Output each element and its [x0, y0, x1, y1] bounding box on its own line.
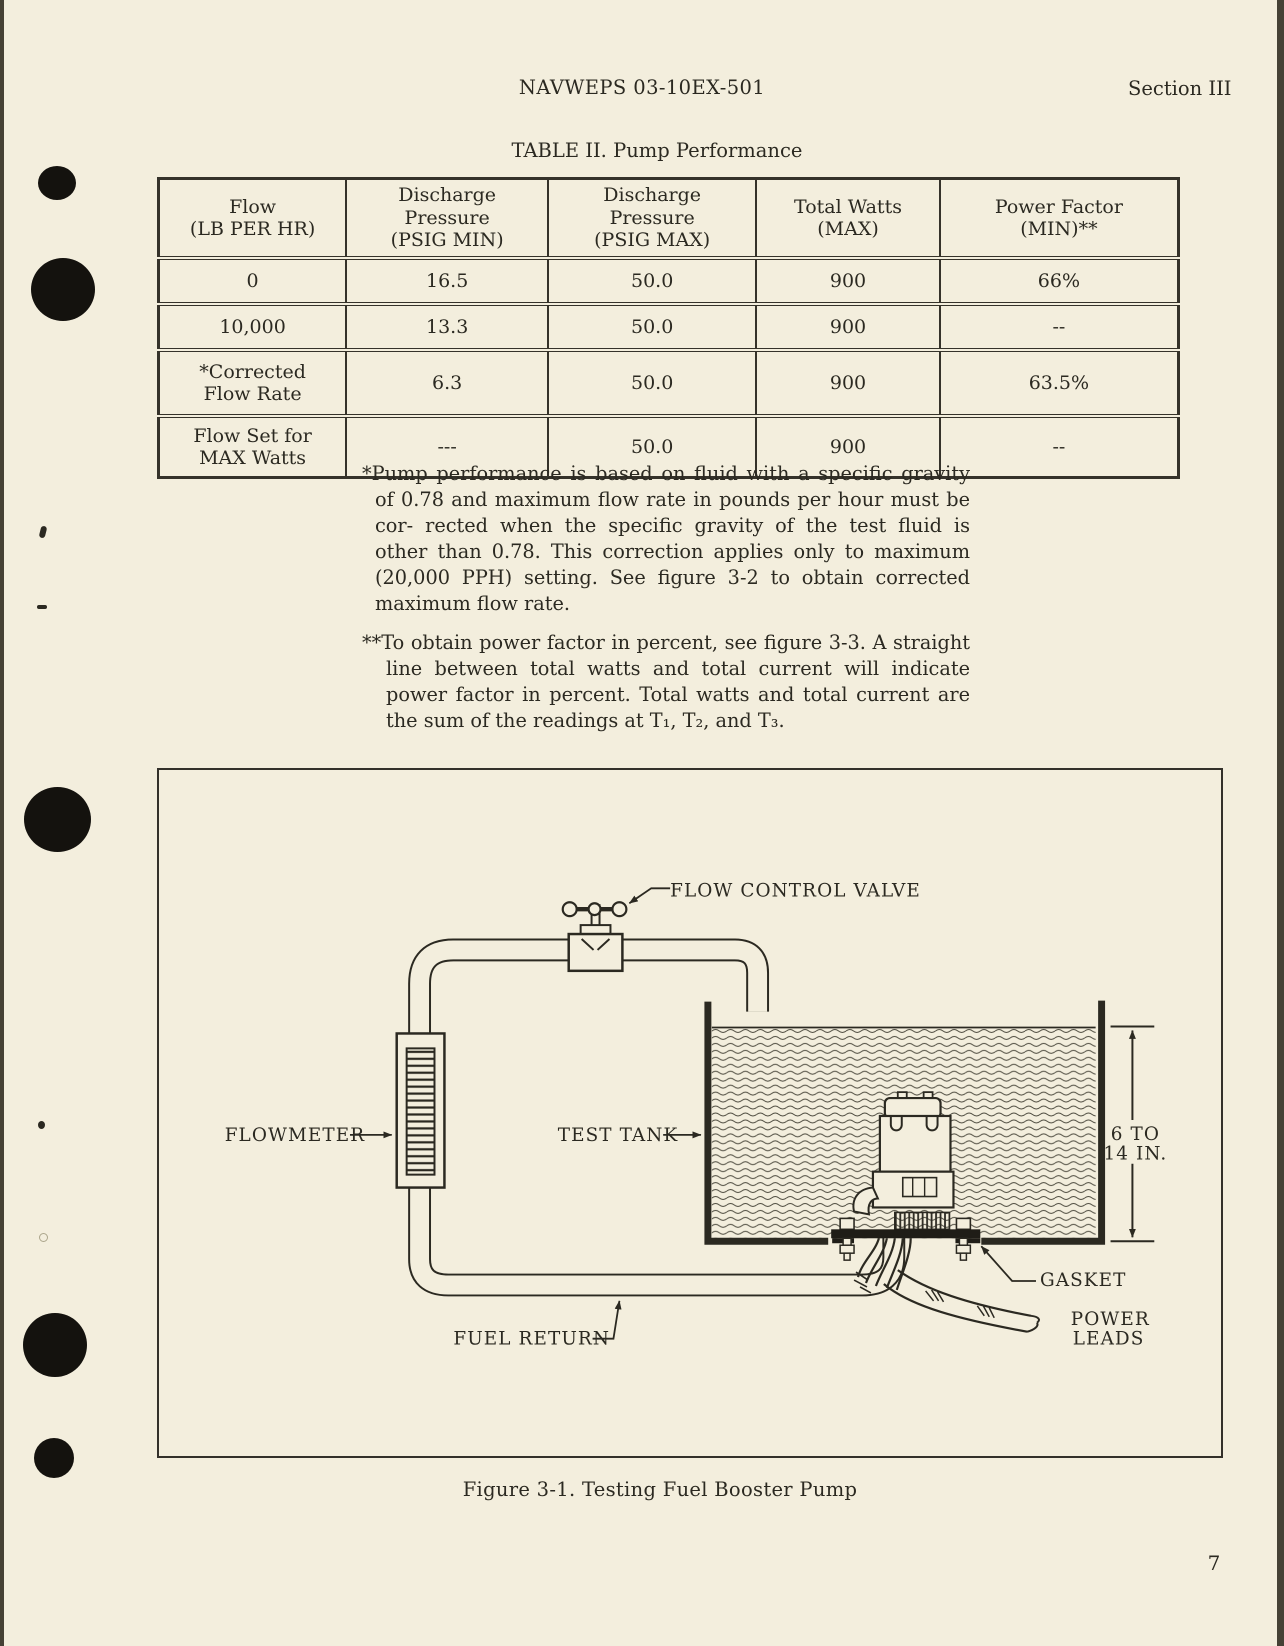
binder-hole	[38, 166, 76, 200]
doc-number: NAVWEPS 03-10EX-501	[0, 76, 1284, 99]
pump-performance-table: Flow(LB PER HR)DischargePressure(PSIG MI…	[157, 177, 1180, 479]
page-right-edge	[1277, 0, 1284, 1646]
figure-3-1: 6 TO 14 IN. FLOW CONTROL VALVE FLOWMETER…	[157, 768, 1223, 1458]
table-cell: 900	[756, 304, 940, 350]
binder-hole	[34, 1438, 74, 1478]
fuel-return-label: FUEL RETURN	[453, 1329, 610, 1350]
pump-ribbed-collar	[895, 1212, 950, 1229]
power-leads-label: LEADS	[1073, 1329, 1145, 1350]
table-cell: 16.5	[346, 258, 548, 304]
table-cell: 63.5%	[940, 350, 1179, 416]
power-leads-label: POWER	[1071, 1309, 1150, 1330]
document-page: NAVWEPS 03-10EX-501 Section III TABLE II…	[0, 0, 1284, 1646]
table-row: 10,00013.350.0900--	[159, 304, 1179, 350]
footnote-marker: *	[362, 462, 372, 485]
testing-fuel-booster-pump-diagram: 6 TO 14 IN. FLOW CONTROL VALVE FLOWMETER…	[159, 770, 1221, 1456]
footnote-marker: **	[362, 631, 381, 654]
scan-speck	[38, 1121, 45, 1129]
table-cell: 6.3	[346, 350, 548, 416]
dimension-label: 6 TO	[1111, 1124, 1160, 1145]
table-title: TABLE II. Pump Performance	[127, 139, 1187, 162]
binder-hole	[31, 258, 95, 321]
footnote-text: To obtain power factor in percent, see f…	[381, 631, 970, 732]
table-header-row: Flow(LB PER HR)DischargePressure(PSIG MI…	[159, 179, 1179, 259]
gasket-label: GASKET	[1040, 1270, 1127, 1291]
valve-body	[569, 934, 623, 971]
table-cell: --	[940, 304, 1179, 350]
binder-hole	[23, 1313, 87, 1377]
table-cell: 66%	[940, 258, 1179, 304]
table-cell: 50.0	[548, 304, 756, 350]
table-cell: 0	[159, 258, 347, 304]
flow-control-valve	[563, 902, 627, 971]
footnote-text: Pump performance is based on fluid with …	[372, 462, 970, 615]
table-footnotes: *Pump performance is based on fluid with…	[362, 461, 970, 747]
table-cell: 13.3	[346, 304, 548, 350]
test-tank-label: TEST TANK	[558, 1125, 679, 1146]
scan-speck	[37, 605, 47, 609]
column-header: Total Watts(MAX)	[756, 179, 940, 259]
table-cell: Flow Set forMAX Watts	[159, 416, 347, 478]
table-cell: 50.0	[548, 258, 756, 304]
column-header: Power Factor(MIN)**	[940, 179, 1179, 259]
footnote: **To obtain power factor in percent, see…	[362, 630, 970, 734]
mounting-plate	[831, 1229, 980, 1238]
table-cell: 50.0	[548, 350, 756, 416]
section-label: Section III	[1128, 77, 1248, 100]
flowmeter-label: FLOWMETER	[225, 1125, 366, 1146]
scan-speck	[39, 525, 48, 538]
figure-caption: Figure 3-1. Testing Fuel Booster Pump	[127, 1478, 1193, 1501]
footnote: *Pump performance is based on fluid with…	[362, 461, 970, 617]
binder-hole	[24, 787, 91, 852]
flowmeter-scale	[407, 1048, 435, 1174]
column-header: Flow(LB PER HR)	[159, 179, 347, 259]
page-left-edge	[0, 0, 4, 1646]
table-cell: 900	[756, 258, 940, 304]
table-cell: *CorrectedFlow Rate	[159, 350, 347, 416]
flowmeter	[397, 1033, 445, 1187]
dimension-label: 14 IN.	[1104, 1144, 1168, 1165]
flow-control-valve-label: FLOW CONTROL VALVE	[670, 880, 921, 901]
table-cell: 900	[756, 350, 940, 416]
table-cell: 10,000	[159, 304, 347, 350]
column-header: DischargePressure(PSIG MAX)	[548, 179, 756, 259]
column-header: DischargePressure(PSIG MIN)	[346, 179, 548, 259]
table-row: 016.550.090066%	[159, 258, 1179, 304]
scan-speck	[39, 1233, 48, 1242]
page-number: 7	[1192, 1551, 1236, 1575]
table-cell: --	[940, 416, 1179, 478]
depth-dimension: 6 TO 14 IN.	[1104, 1027, 1168, 1242]
table-row: *CorrectedFlow Rate6.350.090063.5%	[159, 350, 1179, 416]
